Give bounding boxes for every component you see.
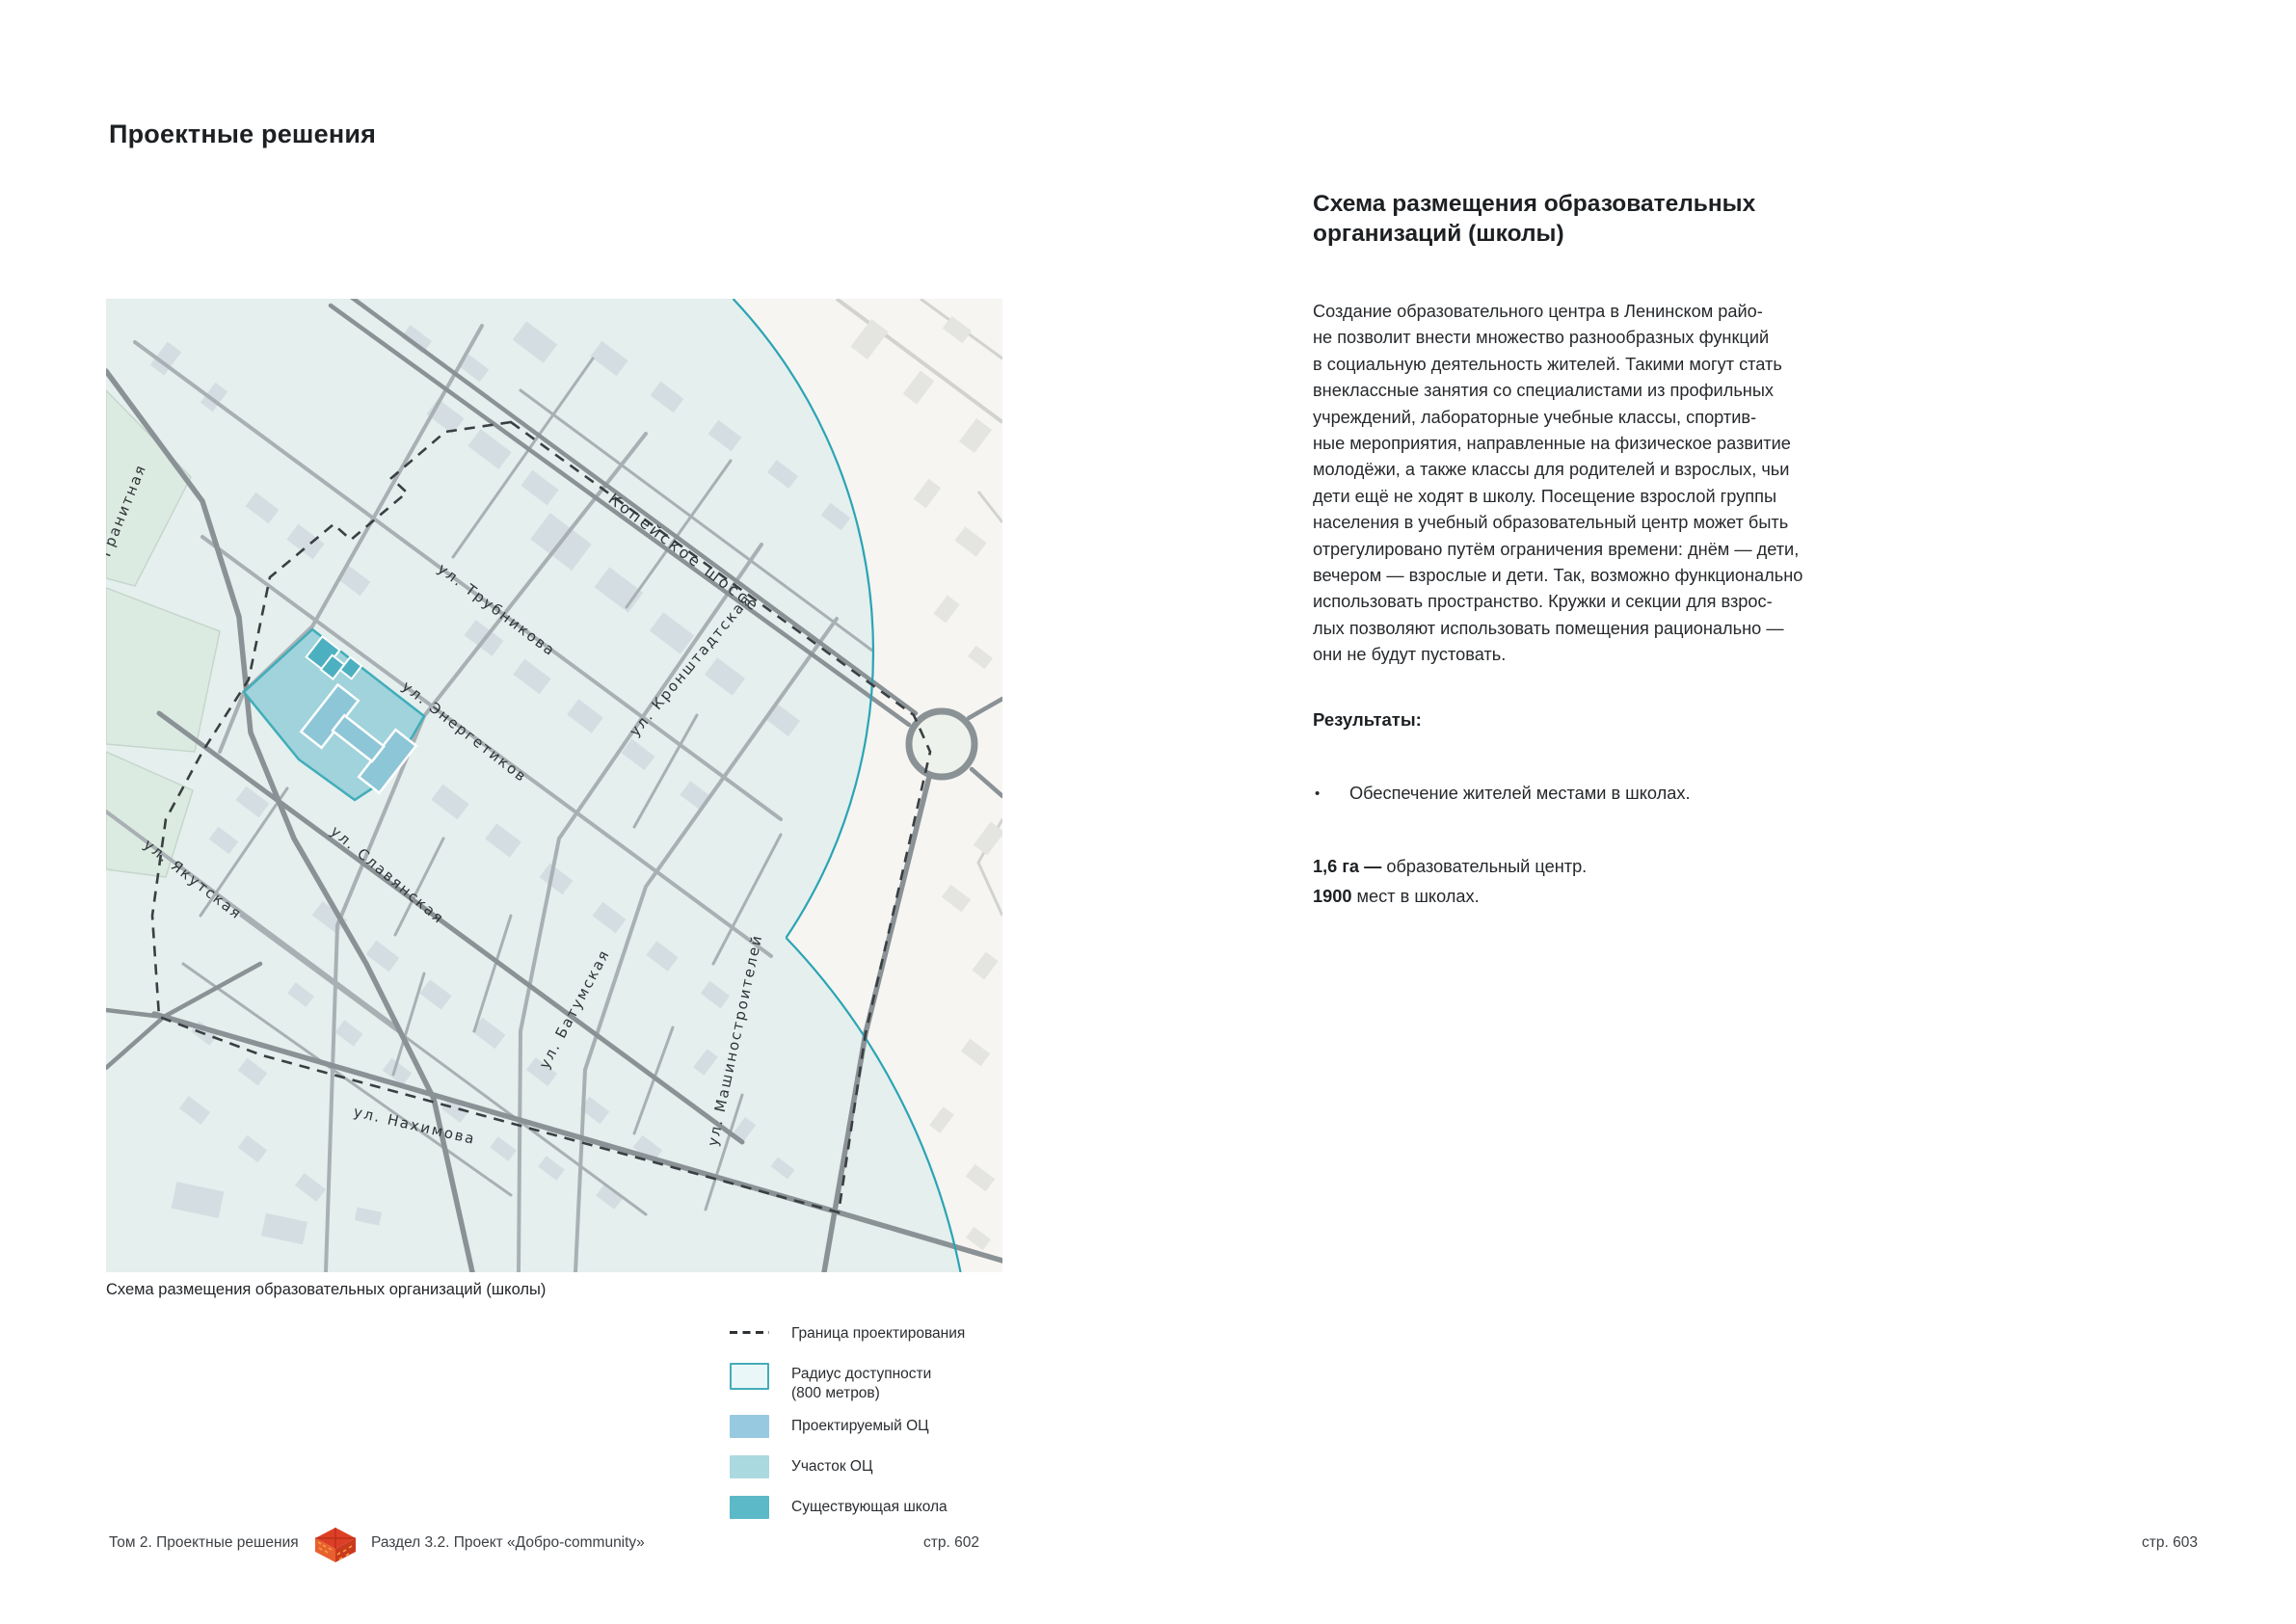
legend-label: Существующая школа xyxy=(791,1496,948,1517)
footer-page-left: стр. 602 xyxy=(923,1534,979,1552)
legend-label: Граница проектирования xyxy=(791,1322,965,1344)
page-title: Проектные решения xyxy=(109,120,376,149)
legend-label: Проектируемый ОЦ xyxy=(791,1415,929,1436)
document-page: Проектные решения xyxy=(0,0,2296,1624)
bullet-text: Обеспечение жителей местами в школах. xyxy=(1349,784,1691,803)
legend-label: Участок ОЦ xyxy=(791,1455,872,1477)
legend-item-existing-school: Существующая школа xyxy=(730,1496,948,1519)
legend-item-radius: Радиус доступности (800 метров) xyxy=(730,1363,931,1403)
footer-page-right: стр. 603 xyxy=(2125,1534,2198,1552)
footer-section: Раздел 3.2. Проект «Добро-community» xyxy=(371,1534,645,1552)
article-body: Создание образовательного центра в Ленин… xyxy=(1313,299,1802,669)
results-bullet: •Обеспечение жителей местами в школах. xyxy=(1315,784,1691,804)
site-oc-swatch-icon xyxy=(730,1455,769,1478)
bullet-dot-icon: • xyxy=(1315,785,1349,802)
logo-cube-icon xyxy=(313,1526,358,1564)
existing-school-swatch-icon xyxy=(730,1496,769,1519)
map-canvas: Копейское шоссе ул. Трубникова ул. Энерг… xyxy=(106,299,1002,1272)
footer-volume: Том 2. Проектные решения xyxy=(109,1534,299,1552)
stats-block: 1,6 га — образовательный центр. 1900 мес… xyxy=(1313,852,1587,912)
stat-line: 1900 мест в школах. xyxy=(1313,882,1587,912)
results-heading: Результаты: xyxy=(1313,709,1422,731)
radius-swatch-icon xyxy=(730,1363,769,1390)
article-heading: Схема размещения образовательных организ… xyxy=(1313,189,1755,249)
dashed-line-icon xyxy=(730,1322,769,1334)
stat-line: 1,6 га — образовательный центр. xyxy=(1313,852,1587,882)
legend-item-boundary: Граница проектирования xyxy=(730,1322,965,1344)
legend-label: Радиус доступности (800 метров) xyxy=(791,1363,931,1403)
planned-oc-swatch-icon xyxy=(730,1415,769,1438)
map-caption: Схема размещения образовательных организ… xyxy=(106,1281,546,1299)
legend-item-site-oc: Участок ОЦ xyxy=(730,1455,872,1478)
schools-map: Копейское шоссе ул. Трубникова ул. Энерг… xyxy=(106,299,1002,1272)
legend-item-planned-oc: Проектируемый ОЦ xyxy=(730,1415,929,1438)
roundabout xyxy=(909,711,974,777)
